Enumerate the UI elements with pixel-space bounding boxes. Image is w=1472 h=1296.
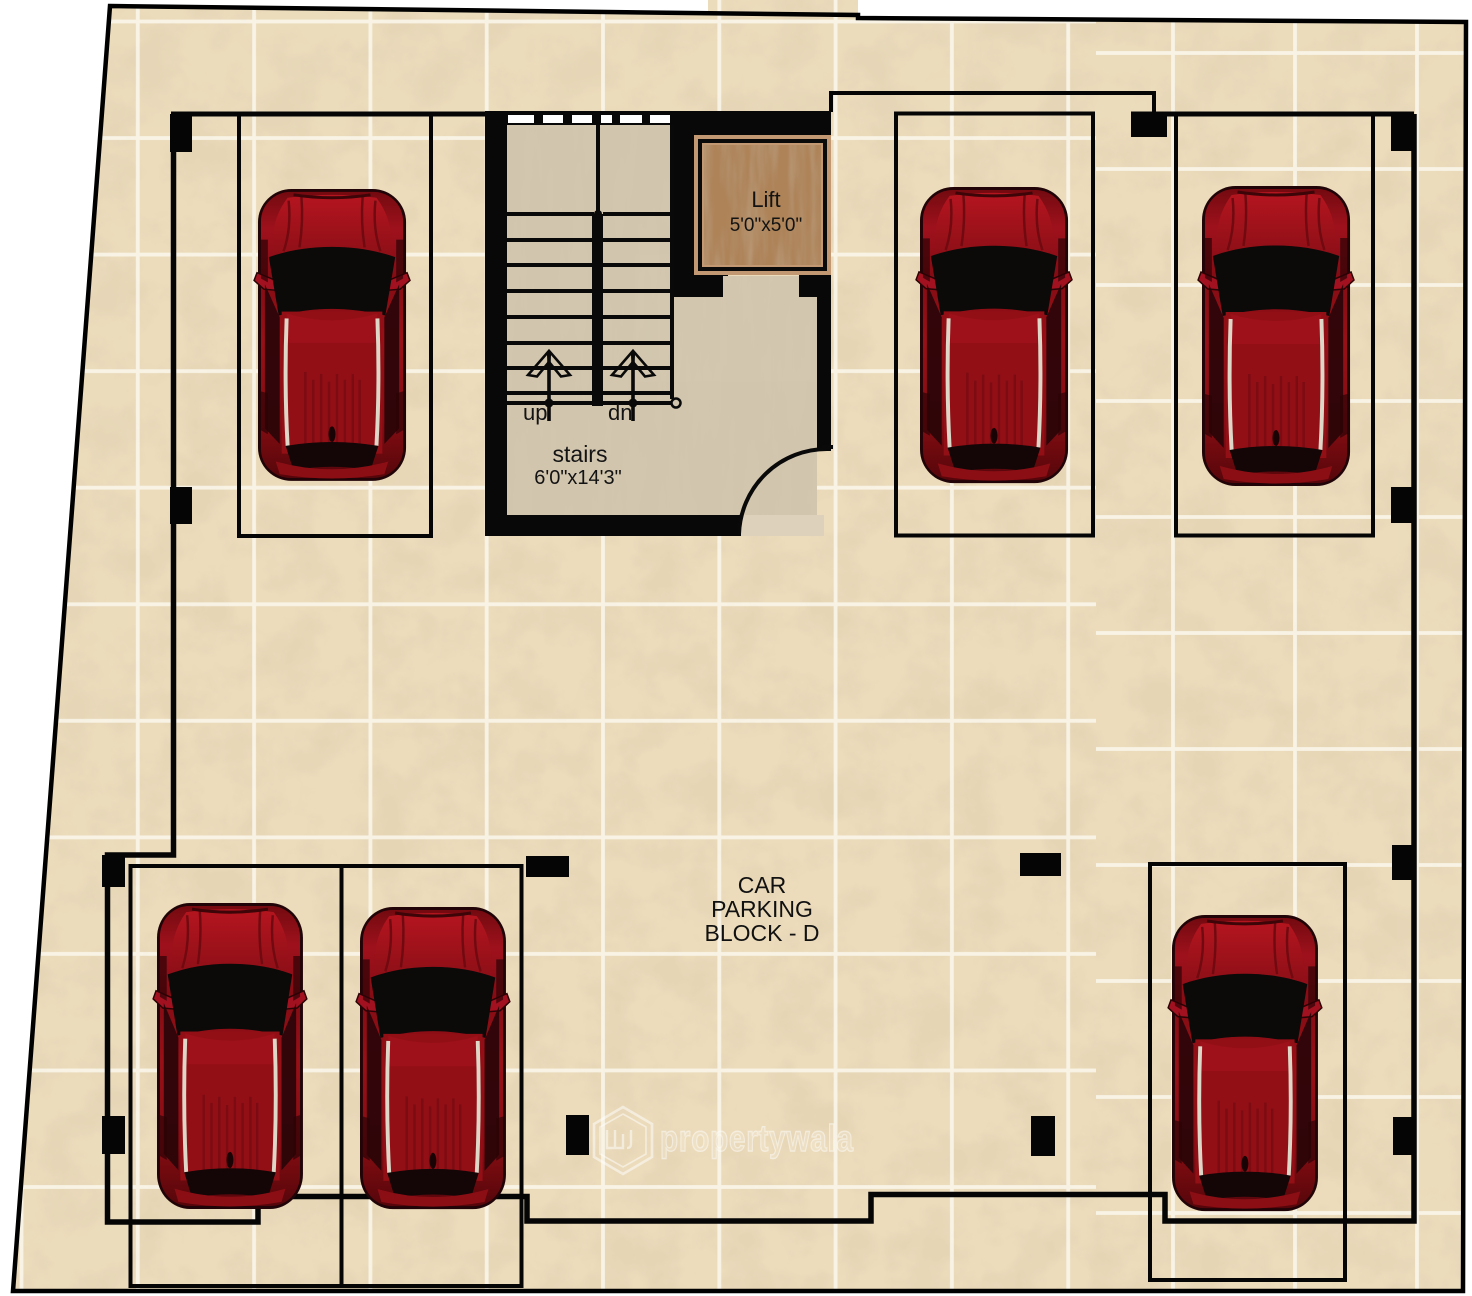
svg-text:CAR: CAR [738,872,787,898]
svg-text:propertywala: propertywala [660,1119,854,1160]
svg-text:BLOCK - D: BLOCK - D [704,920,819,946]
svg-text:up: up [523,400,547,425]
svg-text:Lift: Lift [751,187,780,212]
svg-text:PARKING: PARKING [711,896,813,922]
svg-text:stairs: stairs [553,441,608,467]
svg-text:dn: dn [608,400,632,425]
svg-text:6'0"x14'3": 6'0"x14'3" [534,467,621,489]
svg-text:5'0"x5'0": 5'0"x5'0" [730,215,803,236]
